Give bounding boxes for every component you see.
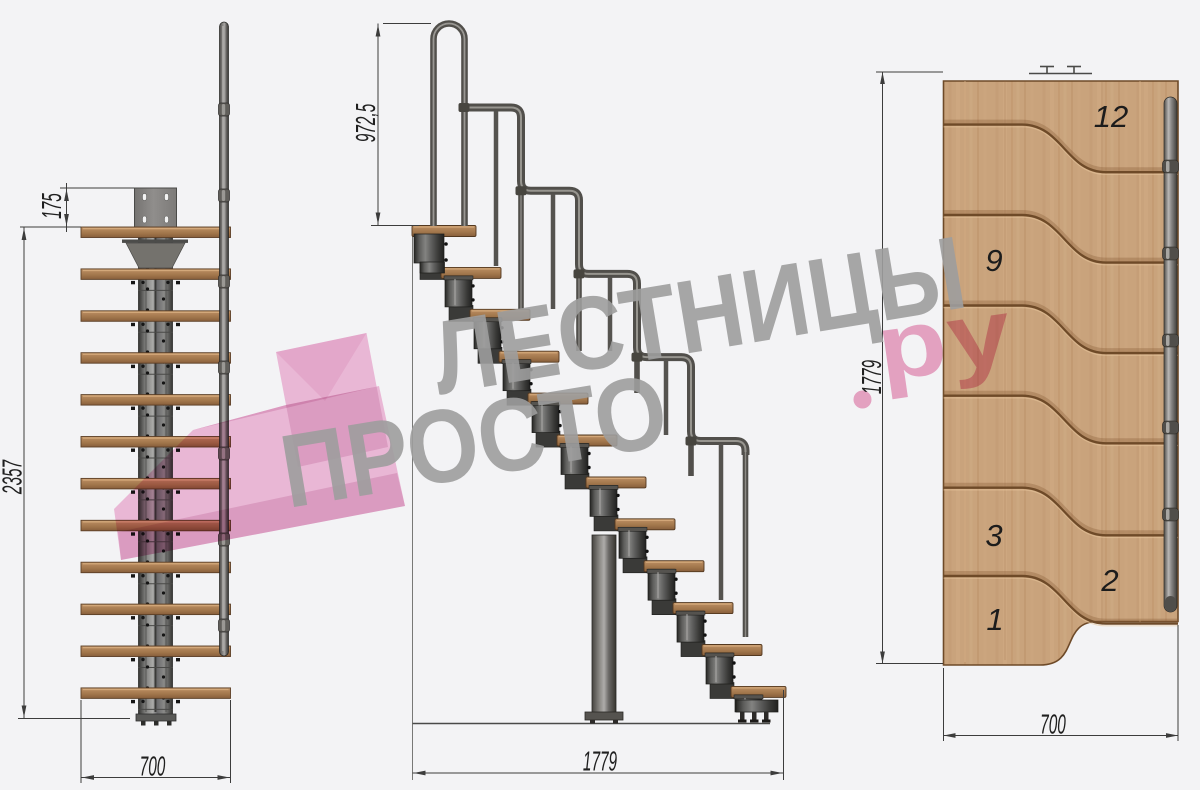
svg-text:1: 1 — [986, 602, 1003, 637]
svg-text:9: 9 — [985, 243, 1002, 278]
svg-text:2: 2 — [1100, 563, 1118, 598]
svg-text:972,5: 972,5 — [350, 103, 381, 142]
svg-text:175: 175 — [36, 193, 67, 219]
svg-text:ру: ру — [870, 279, 1021, 402]
svg-text:3: 3 — [985, 518, 1002, 553]
svg-text:700: 700 — [140, 751, 166, 782]
svg-text:700: 700 — [1040, 709, 1066, 740]
svg-text:12: 12 — [1094, 99, 1128, 134]
svg-text:2357: 2357 — [0, 459, 28, 495]
svg-text:1779: 1779 — [583, 746, 617, 777]
